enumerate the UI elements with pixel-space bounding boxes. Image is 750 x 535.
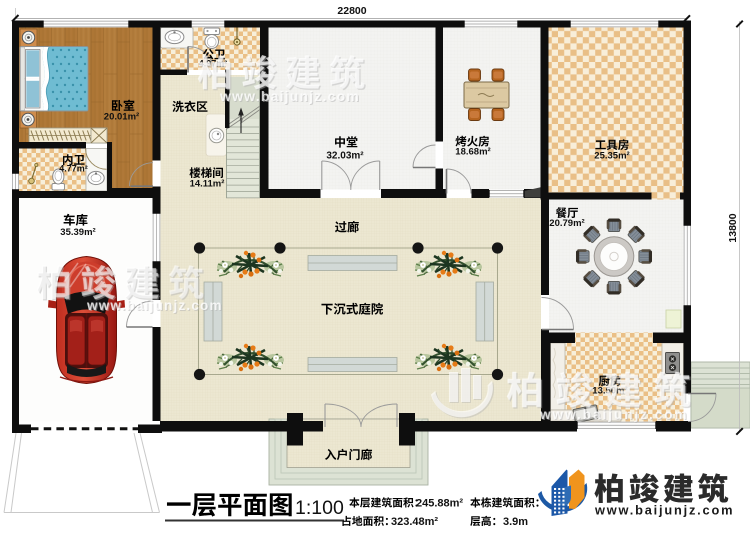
- svg-text:www.baijunjz.com: www.baijunjz.com: [219, 88, 360, 104]
- svg-text:20.79m²: 20.79m²: [549, 218, 584, 229]
- svg-text:www.baijunjz.com: www.baijunjz.com: [86, 298, 223, 313]
- svg-text:3.9m: 3.9m: [503, 516, 528, 528]
- svg-text:14.11m²: 14.11m²: [190, 179, 225, 190]
- svg-text:245.88m²: 245.88m²: [416, 498, 463, 510]
- svg-text:www.baijunjz.com: www.baijunjz.com: [539, 407, 689, 422]
- svg-text:22800: 22800: [337, 5, 366, 17]
- svg-text:323.48m²: 323.48m²: [391, 516, 438, 528]
- svg-text:18.68m²: 18.68m²: [455, 147, 490, 158]
- svg-text:www.baijunjz.com: www.baijunjz.com: [594, 503, 734, 518]
- svg-text:13800: 13800: [727, 213, 739, 242]
- svg-text:4.77m²: 4.77m²: [59, 164, 88, 174]
- svg-text:1:100: 1:100: [295, 497, 344, 519]
- svg-text:20.01m²: 20.01m²: [104, 112, 139, 123]
- svg-text:35.39m²: 35.39m²: [60, 227, 95, 238]
- svg-text:32.03m²: 32.03m²: [326, 151, 364, 162]
- svg-text:25.35m²: 25.35m²: [594, 151, 629, 162]
